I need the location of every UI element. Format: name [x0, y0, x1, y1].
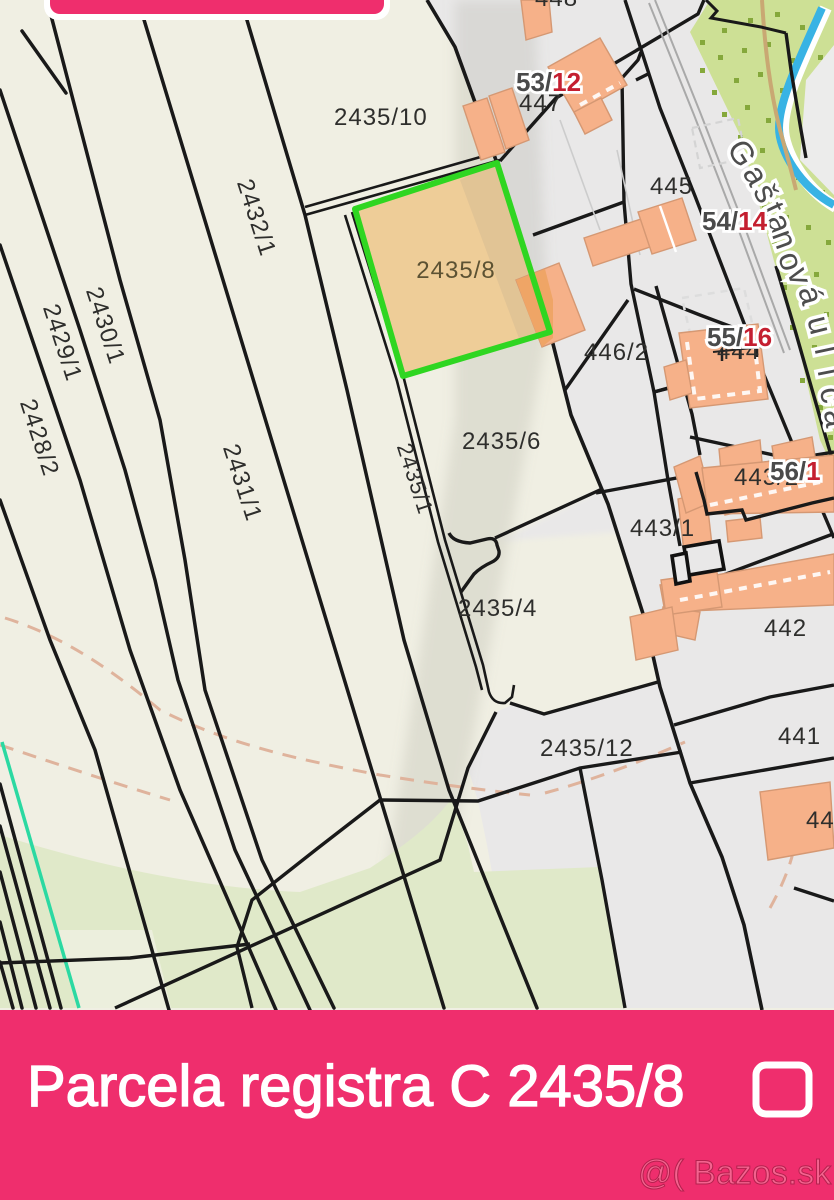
svg-text:443/1: 443/1: [630, 515, 695, 542]
svg-text:2435/6: 2435/6: [462, 428, 541, 455]
svg-text:54/14: 54/14: [702, 206, 768, 236]
svg-text:55/16: 55/16: [707, 322, 772, 352]
svg-text:@( Bazos.sk: @( Bazos.sk: [638, 1154, 832, 1192]
svg-text:2435/8: 2435/8: [416, 257, 495, 284]
svg-text:442: 442: [764, 615, 807, 642]
svg-text:448: 448: [535, 0, 578, 12]
svg-text:440: 440: [806, 807, 834, 834]
svg-text:2435/10: 2435/10: [334, 104, 428, 131]
svg-text:53/12: 53/12: [516, 67, 581, 97]
svg-text:Parcela registra C 2435/8: Parcela registra C 2435/8: [27, 1054, 685, 1119]
svg-text:446/2: 446/2: [584, 339, 649, 366]
svg-text:2435/4: 2435/4: [458, 595, 537, 622]
svg-text:56/1: 56/1: [770, 456, 821, 486]
svg-text:445: 445: [650, 173, 693, 200]
svg-text:441: 441: [778, 723, 821, 750]
svg-text:2435/12: 2435/12: [540, 735, 634, 762]
